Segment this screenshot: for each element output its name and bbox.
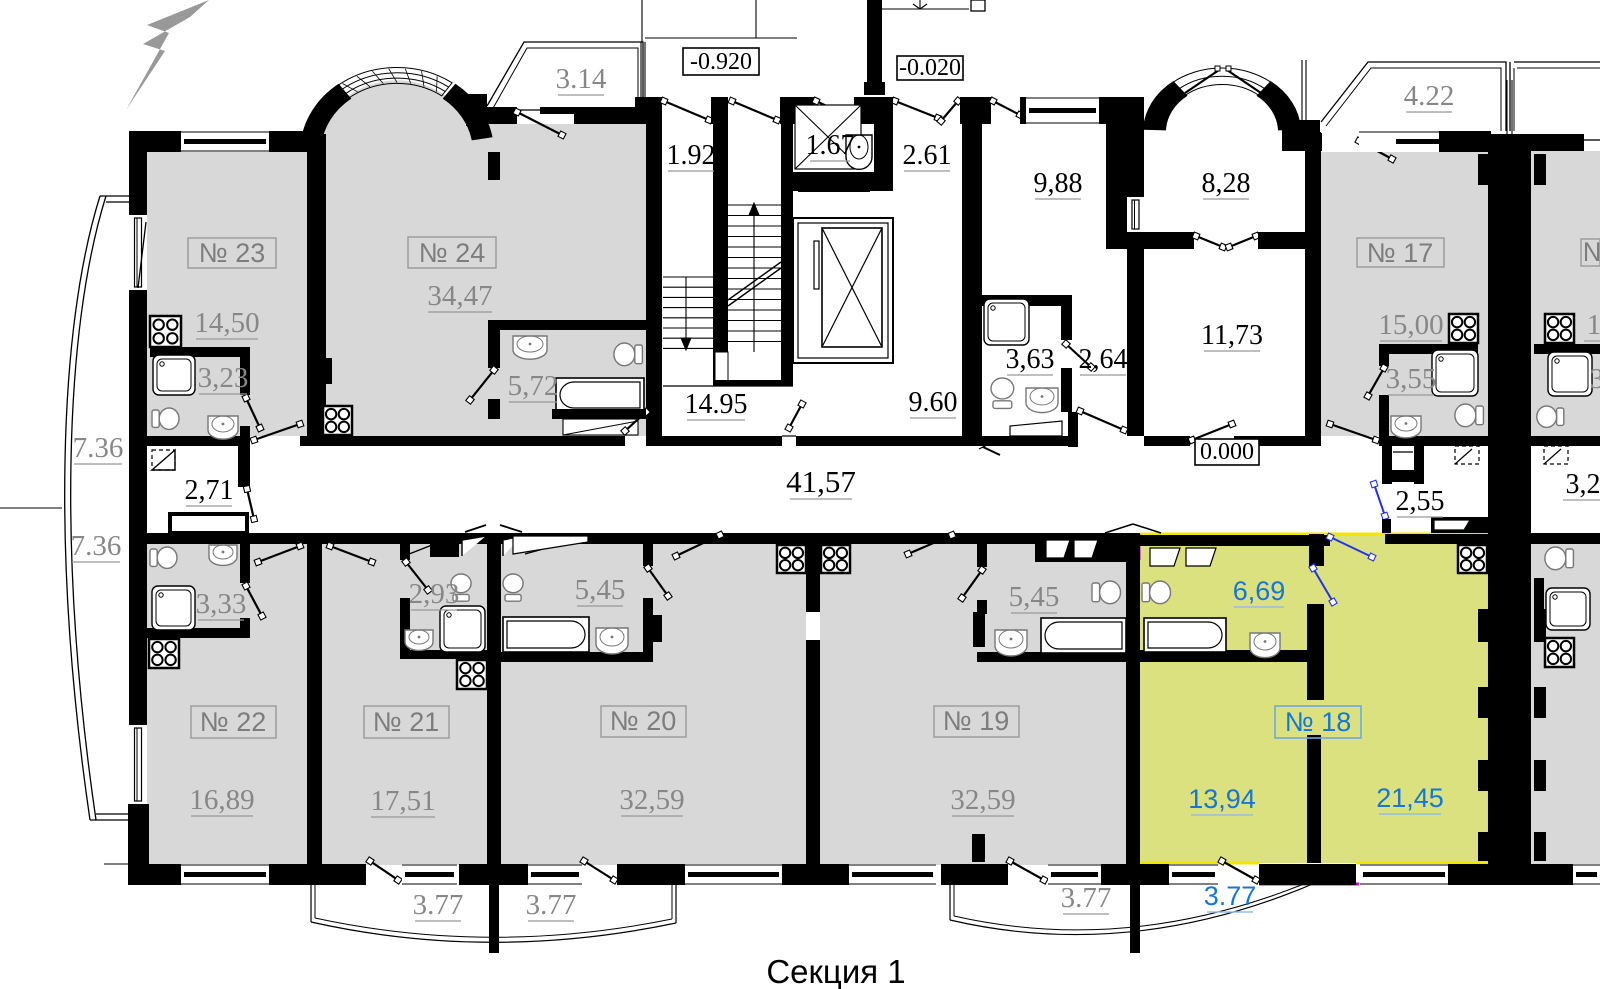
svg-text:13,94: 13,94 [1188,784,1256,814]
svg-text:3: 3 [1590,363,1600,395]
svg-text:34,47: 34,47 [427,280,492,312]
svg-text:3,63: 3,63 [1006,344,1055,375]
svg-text:2,93: 2,93 [409,578,460,610]
svg-text:3,55: 3,55 [1386,363,1437,395]
svg-text:0.000: 0.000 [1200,439,1254,465]
svg-text:5,45: 5,45 [1009,581,1060,613]
svg-text:№: № [1583,237,1600,267]
svg-text:3.77: 3.77 [1061,882,1112,914]
svg-text:№ 23: № 23 [199,238,266,268]
svg-text:№ 24: № 24 [419,238,486,268]
svg-text:32,59: 32,59 [950,784,1015,816]
svg-text:3.77: 3.77 [413,889,464,921]
svg-text:3,33: 3,33 [196,588,247,620]
svg-text:Секция 1: Секция 1 [766,953,905,989]
svg-text:2,55: 2,55 [1396,486,1445,517]
svg-text:№ 17: № 17 [1367,238,1434,268]
svg-text:4.22: 4.22 [1404,80,1455,112]
svg-text:9.60: 9.60 [909,387,958,418]
svg-text:3,23: 3,23 [198,362,249,394]
svg-text:2,64: 2,64 [1079,344,1128,375]
svg-text:3.77: 3.77 [1204,881,1257,911]
svg-text:41,57: 41,57 [786,464,856,499]
svg-text:-0.020: -0.020 [899,55,961,81]
svg-text:№ 19: № 19 [943,706,1010,736]
svg-text:14.95: 14.95 [685,389,748,420]
svg-text:6,69: 6,69 [1233,576,1286,606]
svg-text:32,59: 32,59 [619,784,684,816]
svg-text:5,45: 5,45 [575,574,626,606]
svg-text:1: 1 [1587,309,1600,341]
svg-text:7.36: 7.36 [73,432,124,464]
svg-text:14,50: 14,50 [194,307,259,339]
svg-text:1.67: 1.67 [806,130,855,161]
svg-text:21,45: 21,45 [1376,783,1444,813]
svg-text:16,89: 16,89 [189,784,254,816]
svg-text:7.36: 7.36 [71,530,122,562]
svg-text:5,72: 5,72 [508,370,559,402]
svg-text:№ 20: № 20 [610,706,677,736]
svg-text:11,73: 11,73 [1201,320,1263,351]
svg-text:1.92: 1.92 [667,140,716,171]
svg-text:15,00: 15,00 [1378,309,1443,341]
svg-text:17,51: 17,51 [370,785,435,817]
svg-text:2,71: 2,71 [185,475,234,506]
svg-text:№ 22: № 22 [200,707,267,737]
svg-text:8,28: 8,28 [1202,168,1251,199]
svg-text:2.61: 2.61 [903,140,952,171]
svg-text:3.14: 3.14 [556,63,607,95]
svg-text:9,88: 9,88 [1034,168,1083,199]
svg-text:3.77: 3.77 [526,889,577,921]
svg-text:-0.920: -0.920 [690,49,752,75]
svg-text:№ 21: № 21 [373,707,440,737]
svg-text:3,2: 3,2 [1566,469,1600,500]
svg-text:№ 18: № 18 [1285,707,1352,737]
